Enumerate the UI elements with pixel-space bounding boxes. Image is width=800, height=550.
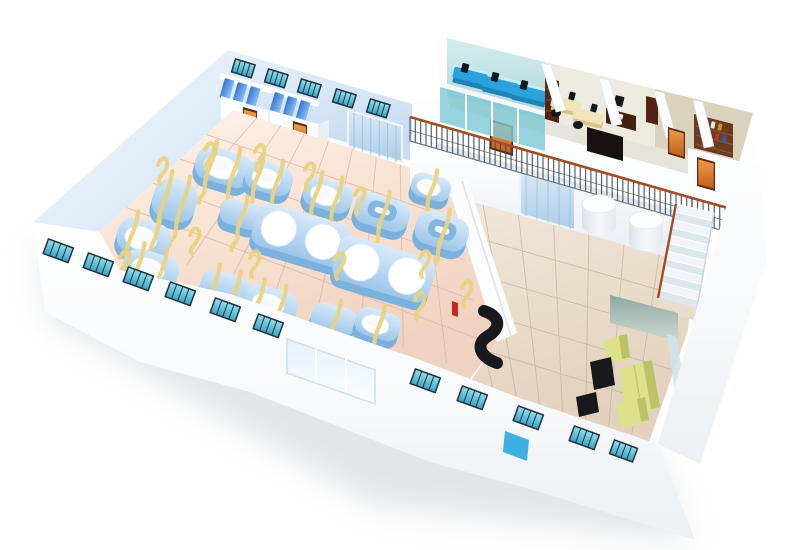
round-table bbox=[582, 195, 616, 235]
fire-extinguisher bbox=[452, 301, 458, 317]
scene-root bbox=[30, 38, 767, 545]
corridor-door bbox=[668, 127, 685, 159]
office-chair bbox=[573, 121, 583, 129]
facility-floorplan-render bbox=[0, 0, 800, 550]
floorplan-canvas bbox=[0, 0, 800, 550]
coffee-table bbox=[590, 357, 615, 390]
lower-door bbox=[697, 157, 715, 191]
round-table bbox=[629, 211, 663, 251]
